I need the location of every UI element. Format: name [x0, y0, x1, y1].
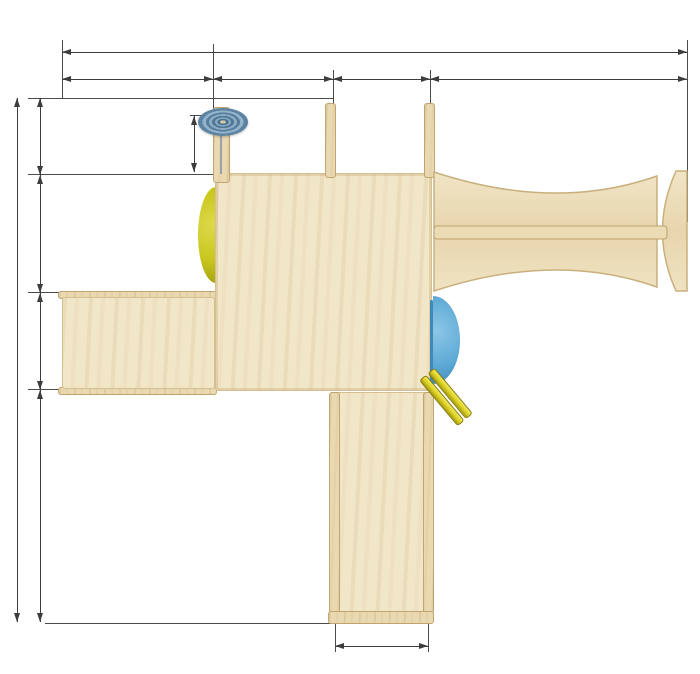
extension-line — [28, 98, 333, 99]
dim-line-total-width — [62, 52, 687, 53]
net-side-panels — [434, 172, 657, 291]
dim-line-30 — [194, 116, 195, 172]
dim-line-76 — [213, 79, 333, 80]
ground-line — [45, 623, 335, 624]
dim-line-144 — [40, 390, 41, 622]
dim-line-63-top — [333, 79, 430, 80]
bars-right-rail — [424, 103, 435, 178]
steering-wheel — [198, 108, 248, 136]
ladder-left-rail — [329, 392, 340, 614]
dim-line-76v — [40, 175, 41, 293]
bars-left-rail — [325, 103, 336, 178]
platform-deck — [215, 173, 432, 391]
net-right-arc-panel — [663, 171, 688, 291]
dim-line-41 — [40, 98, 41, 175]
dim-label-144 — [20, 461, 36, 551]
playground-top-view-drawing — [0, 0, 700, 674]
dim-line-156 — [430, 79, 687, 80]
dim-line-total-height — [17, 98, 18, 622]
dim-label-41 — [20, 91, 36, 181]
ramp-board — [62, 297, 215, 389]
dim-label-30 — [175, 101, 191, 191]
ladder-board — [334, 392, 429, 613]
dim-label-total-height — [0, 315, 16, 405]
dim-line-99 — [62, 79, 213, 80]
extension-line — [687, 40, 688, 222]
ladder-right-rail — [423, 392, 434, 614]
net-center-beam — [434, 226, 667, 239]
dim-label-76v — [20, 189, 36, 279]
dim-label-63v — [20, 296, 36, 386]
dim-line-63v — [40, 293, 41, 390]
ladder-foot-bar — [328, 611, 434, 624]
dim-line-63-bottom — [335, 646, 428, 647]
